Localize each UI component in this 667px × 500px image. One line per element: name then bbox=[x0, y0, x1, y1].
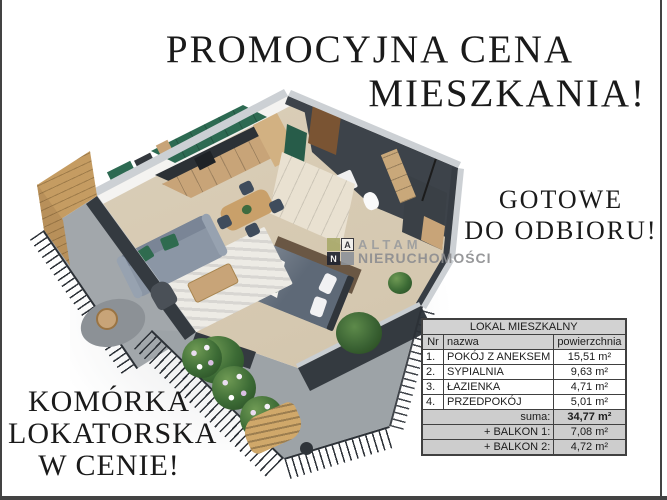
balkon2-label: + BALKON 2: bbox=[422, 440, 554, 456]
row-area: 5,01 m² bbox=[554, 395, 626, 410]
row-name: ŁAZIENKA bbox=[444, 380, 554, 395]
table-title-row: LOKAL MIESZKALNY bbox=[422, 319, 626, 335]
storage-line1: KOMÓRKA bbox=[8, 386, 210, 418]
logo-squares: A N bbox=[327, 238, 354, 265]
table-row: 2. SYPIALNIA 9,63 m² bbox=[422, 365, 626, 380]
balkon1-label: + BALKON 1: bbox=[422, 425, 554, 440]
flower-plant bbox=[182, 338, 222, 378]
table-plate bbox=[240, 203, 253, 216]
row-area: 15,51 m² bbox=[554, 350, 626, 365]
storage-banner: KOMÓRKA LOKATORSKA W CENIE! bbox=[8, 386, 210, 482]
storage-line3: W CENIE! bbox=[8, 450, 210, 482]
col-header-nr: Nr bbox=[422, 335, 444, 350]
sum-label: suma: bbox=[422, 410, 554, 425]
balkon2-area: 4,72 m² bbox=[554, 440, 626, 456]
ready-line2: DO ODBIORU! bbox=[458, 215, 664, 246]
frame-line-left bbox=[0, 0, 2, 500]
logo-square-gold-icon bbox=[327, 238, 340, 251]
table-row: 1. POKÓJ Z ANEKSEM 15,51 m² bbox=[422, 350, 626, 365]
palm-plant bbox=[336, 312, 382, 354]
row-nr: 2. bbox=[422, 365, 444, 380]
bedroom-plant bbox=[388, 272, 412, 294]
col-header-area: powierzchnia bbox=[554, 335, 626, 350]
row-area: 9,63 m² bbox=[554, 365, 626, 380]
ready-banner: GOTOWE DO ODBIORU! bbox=[458, 184, 664, 246]
col-header-name: nazwa bbox=[444, 335, 554, 350]
table-row: 4. PRZEDPOKÓJ 5,01 m² bbox=[422, 395, 626, 410]
plant-pot bbox=[300, 442, 313, 455]
row-name: PRZEDPOKÓJ bbox=[444, 395, 554, 410]
row-name: POKÓJ Z ANEKSEM bbox=[444, 350, 554, 365]
frame-line-right bbox=[660, 0, 662, 500]
bed-pillow bbox=[318, 272, 338, 295]
table-row: 3. ŁAZIENKA 4,71 m² bbox=[422, 380, 626, 395]
logo-square-n-icon: N bbox=[327, 252, 340, 265]
row-nr: 4. bbox=[422, 395, 444, 410]
frame-line-bottom bbox=[0, 496, 667, 500]
bed-pillow bbox=[309, 296, 327, 318]
table-balkon1-row: + BALKON 1: 7,08 m² bbox=[422, 425, 626, 440]
storage-line2: LOKATORSKA bbox=[8, 418, 210, 450]
headline-line2: MIESZKANIA! bbox=[368, 74, 646, 113]
table-balkon2-row: + BALKON 2: 4,72 m² bbox=[422, 440, 626, 456]
headline-line1: PROMOCYJNA CENA bbox=[140, 30, 600, 69]
table-title: LOKAL MIESZKALNY bbox=[422, 319, 626, 335]
table-sum-row: suma: 34,77 m² bbox=[422, 410, 626, 425]
logo-square-gray-icon bbox=[341, 252, 354, 265]
logo-name-bottom: NIERUCHOMOŚCI bbox=[358, 251, 492, 266]
table-header-row: Nr nazwa powierzchnia bbox=[422, 335, 626, 350]
sum-area: 34,77 m² bbox=[554, 410, 626, 425]
row-area: 4,71 m² bbox=[554, 380, 626, 395]
ready-line1: GOTOWE bbox=[458, 184, 664, 215]
balcony1-side-table bbox=[96, 308, 118, 330]
logo-square-a-icon: A bbox=[341, 238, 354, 251]
row-name: SYPIALNIA bbox=[444, 365, 554, 380]
area-table: LOKAL MIESZKALNY Nr nazwa powierzchnia 1… bbox=[421, 318, 627, 456]
listing-image: A N ALTAM NIERUCHOMOŚCI PROMOCYJNA CENA … bbox=[0, 0, 667, 500]
balkon1-area: 7,08 m² bbox=[554, 425, 626, 440]
row-nr: 1. bbox=[422, 350, 444, 365]
row-nr: 3. bbox=[422, 380, 444, 395]
